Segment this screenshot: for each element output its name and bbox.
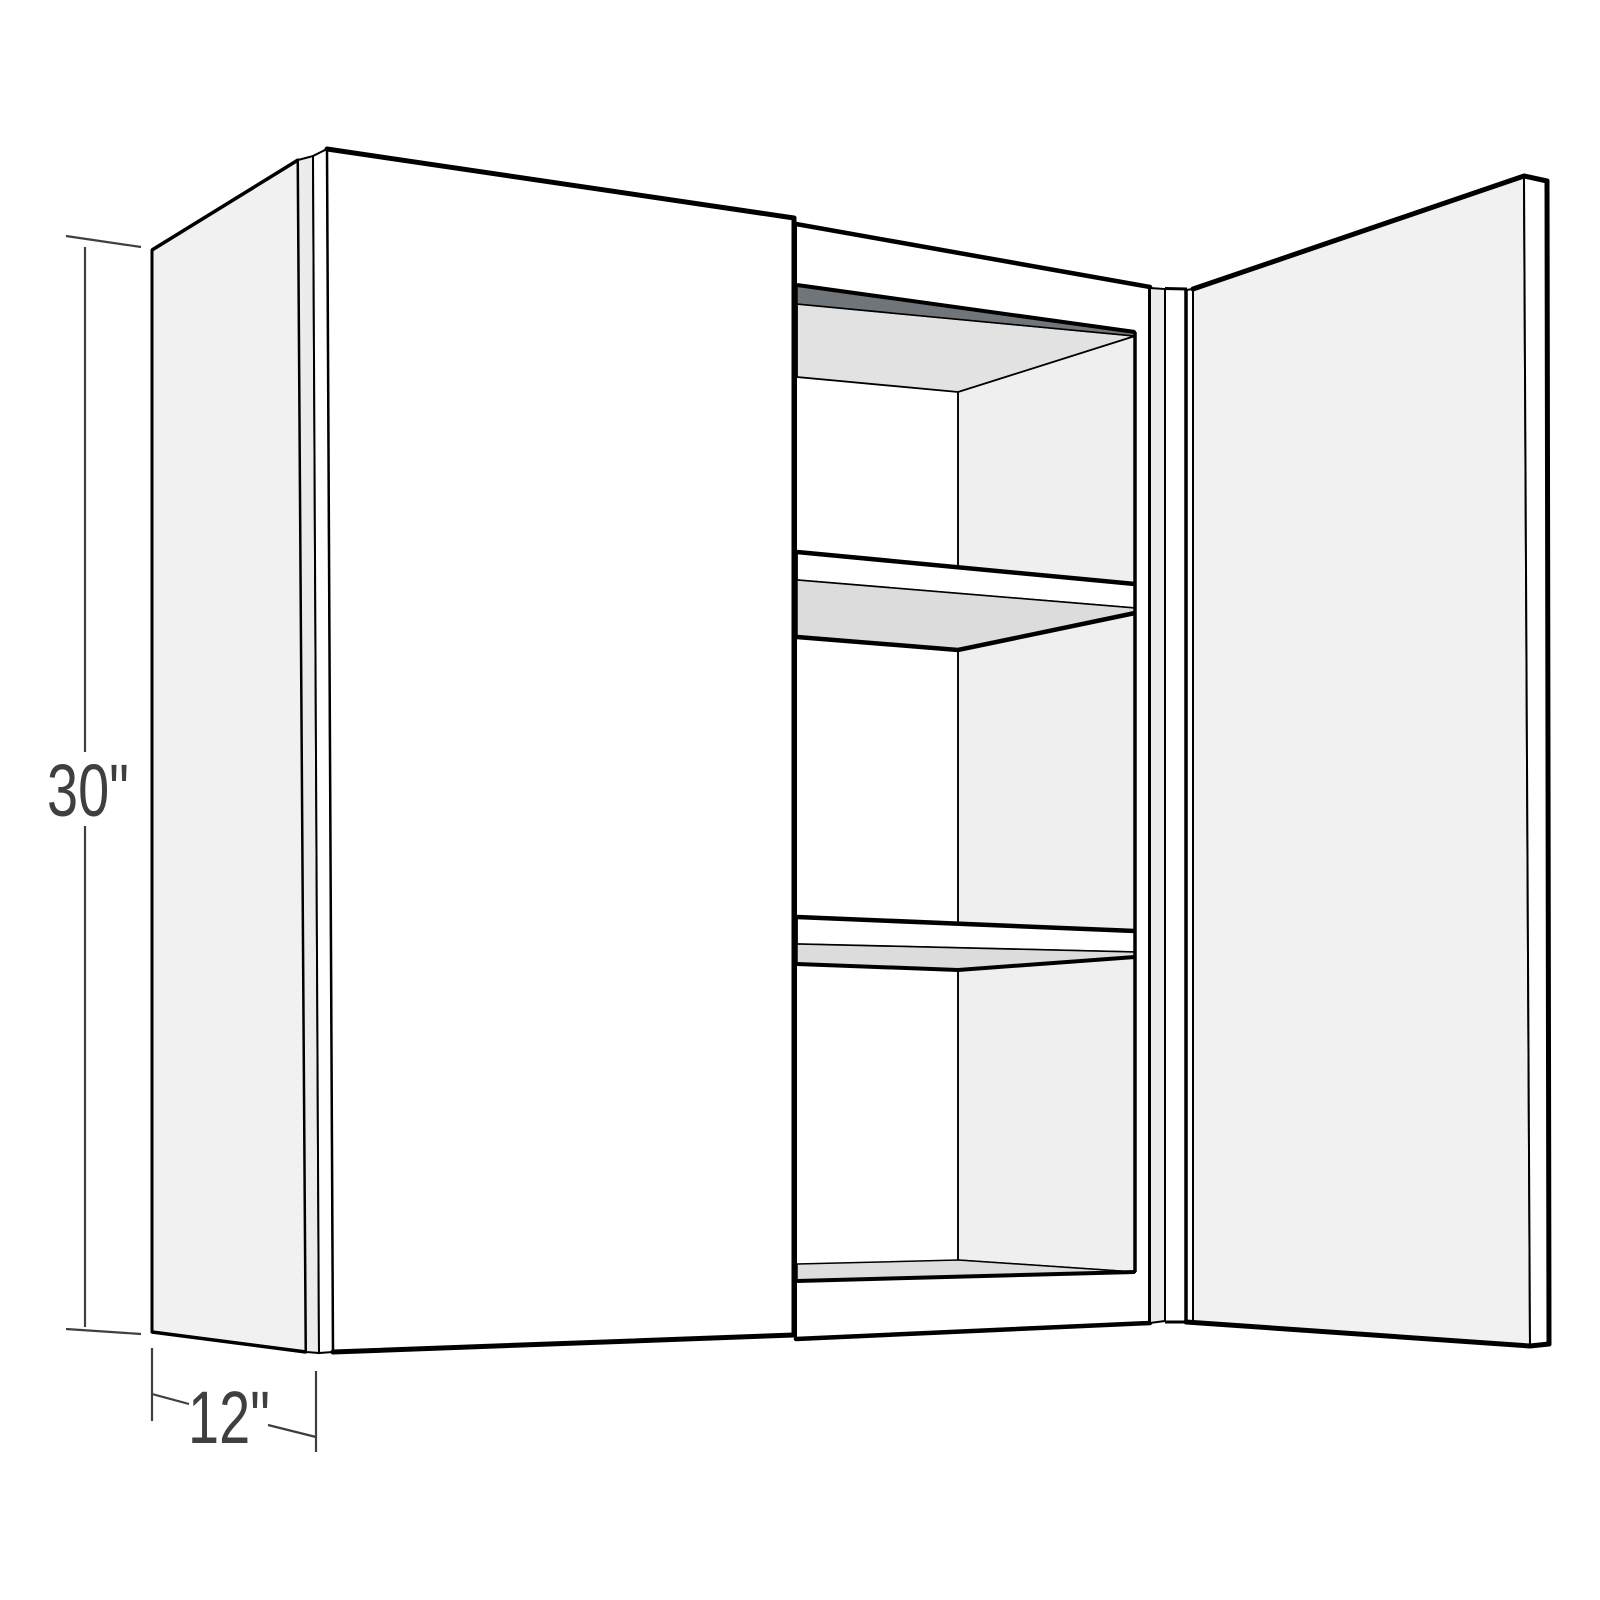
depth-dimension: 12" [152, 1348, 316, 1459]
open-door [1186, 176, 1549, 1346]
cabinet-diagram: 30" 12" [0, 0, 1600, 1600]
depth-dimension-label: 12" [188, 1376, 270, 1459]
cabinet-interior [797, 285, 1135, 1281]
cabinet-diagram-canvas: 30" 12" [0, 0, 1600, 1600]
open-door-right-edge [1547, 181, 1549, 1344]
interior-right-wall [958, 336, 1135, 1272]
left-side-panel [152, 160, 306, 1352]
height-dimension-label: 30" [47, 749, 129, 832]
depth-dim-line-left [152, 1394, 189, 1404]
cabinet [152, 149, 1549, 1353]
height-dim-bottom-tick [66, 1329, 141, 1334]
open-door-face [1193, 176, 1530, 1346]
height-dimension: 30" [47, 236, 141, 1334]
height-dim-top-tick [66, 236, 141, 247]
right-side-panel-top-edge [1165, 289, 1187, 290]
closed-door [327, 149, 794, 1352]
depth-dim-line-right [268, 1425, 316, 1437]
right-side-panel-edge [1150, 288, 1165, 1323]
interior-back-wall [797, 377, 958, 1264]
